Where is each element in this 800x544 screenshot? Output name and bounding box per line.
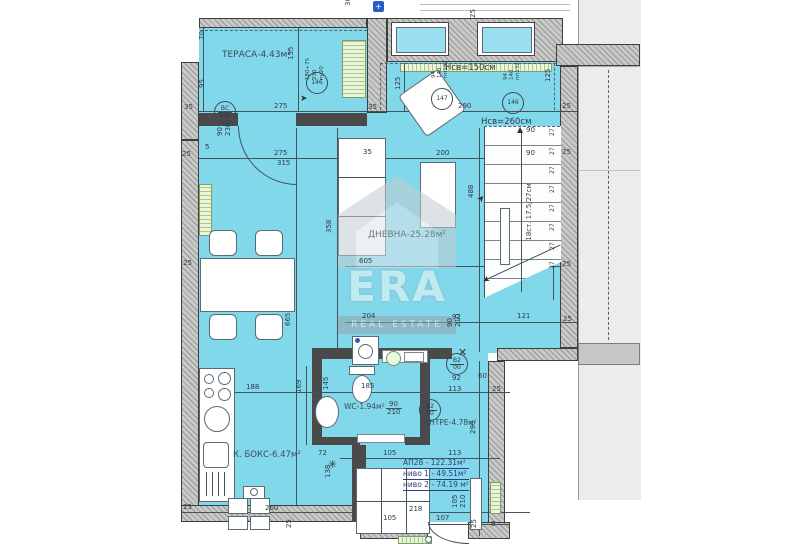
boiler-icon [386, 351, 401, 366]
label-antre: АНТРЕ-4.78м² [424, 418, 477, 427]
window-glass [482, 27, 532, 53]
dim-label: 35 [363, 149, 372, 156]
dim-label: 35 [368, 104, 377, 111]
wall-exterior [497, 348, 578, 361]
washbasin [315, 396, 339, 428]
dim-label: 25 [183, 504, 192, 511]
neighbor-line [578, 170, 640, 171]
dim-label: 358 [326, 220, 333, 233]
dim-line [298, 28, 299, 111]
dim-label: 25 [562, 103, 571, 110]
dim-label: 25 [562, 149, 571, 156]
stair-tread [485, 202, 561, 203]
dim-label: 60 [478, 373, 487, 380]
kitchen-counter [199, 368, 235, 502]
apartment-info: АП28 - 122.31м² ниво 1 - 49.51м² ниво 2 … [403, 458, 469, 491]
dim-label: 90 [389, 401, 398, 408]
dim-label: 95 [199, 79, 206, 88]
dim-label: 200 [436, 150, 449, 157]
drainboard-line [212, 472, 213, 496]
radiator [490, 482, 501, 514]
dim-label: 210 [455, 314, 462, 327]
window-glass [396, 27, 446, 53]
stair-tread [485, 221, 561, 222]
entry-door-arc [428, 522, 469, 544]
element-marker: 146 [306, 72, 328, 94]
dim-label: 27 [549, 147, 556, 155]
dim-label: 105 [383, 515, 396, 522]
dim-label: 5 [205, 144, 209, 151]
dim-label: 35 [184, 104, 193, 111]
stove-burner [204, 388, 214, 398]
dim-line [203, 28, 204, 111]
chair [255, 230, 283, 256]
era-watermark: ERA REAL ESTATE [338, 176, 456, 342]
dim-label: 605 [359, 258, 372, 265]
dim-label: 30 [345, 0, 352, 6]
drainboard-line [224, 472, 225, 496]
dim-label: 25 [183, 260, 192, 267]
dim-label: 90 [526, 127, 535, 134]
dim-label: 488 [468, 185, 475, 198]
dim-label: 218 [409, 506, 422, 513]
wc-threshold [357, 434, 405, 443]
dim-label: 27 [549, 128, 556, 136]
dim-label: 27 [549, 185, 556, 193]
chair [209, 230, 237, 256]
dim-line [479, 128, 480, 352]
dim-label: 105 [452, 495, 459, 508]
dim-label: 90 [447, 318, 454, 327]
wall-interior [296, 113, 367, 126]
dim-label: 27 [549, 204, 556, 212]
marker-text: 00 [450, 364, 464, 371]
dim-label: 121 [517, 313, 530, 320]
shelf-items [404, 352, 424, 362]
wall-exterior [367, 18, 387, 113]
dim-label: 72 [318, 450, 327, 457]
dim-label: 25 [470, 9, 477, 18]
wall-exterior [181, 140, 199, 522]
element-marker: В200 [446, 353, 468, 375]
dim-label: 275 [274, 150, 287, 157]
dim-label: 125 [395, 77, 402, 90]
kitchen-sink [203, 442, 229, 468]
stove-burner [218, 372, 231, 385]
dim-label: 230 [225, 123, 232, 136]
wall-exterior [181, 62, 199, 140]
stair-tread [485, 259, 561, 260]
dim-label: 25 [286, 519, 293, 528]
dashed-line [554, 63, 555, 110]
kitchen-cabinet [228, 516, 248, 530]
dim-line [306, 366, 307, 445]
vent-icon: + [373, 1, 384, 12]
label-terrace: ТЕРАСА-4.43м² [222, 50, 291, 60]
dim-label: пп132 [515, 62, 522, 80]
marker-text: 00 [423, 410, 437, 417]
washing-machine-door [358, 344, 373, 359]
label-h260: Нсв=260см [481, 117, 532, 127]
dim-label: 25 [492, 386, 501, 393]
radiator [199, 184, 212, 236]
apartment-level2: ниво 2 - 74.19 м² [403, 480, 469, 491]
chair [209, 314, 237, 340]
marker-text: 146 [507, 100, 518, 106]
element-marker: 147 [431, 88, 453, 110]
dining-table [200, 258, 295, 312]
era-subtitle: REAL ESTATE [338, 316, 456, 334]
dim-label: 665 [285, 313, 292, 326]
apartment-level1: ниво 1 - 49.51м² [403, 469, 469, 480]
marker-text: 148 [218, 112, 232, 119]
dim-label: 125 [545, 69, 552, 82]
era-logo-text: ERA [338, 262, 456, 311]
dim-label: 113 [448, 450, 461, 457]
dim-label: 138 [325, 465, 332, 478]
dim-label: 210 [460, 495, 467, 508]
stair-tread [485, 164, 561, 165]
dim-label: 25 [563, 316, 572, 323]
dim-label: 27 [549, 242, 556, 250]
dim-label: 6 [491, 521, 495, 528]
dim-label: 27 [549, 166, 556, 174]
dim-label: 107 [436, 515, 449, 522]
dim-label: 105 [383, 450, 396, 457]
floor-plan: + ▲ [0, 0, 800, 544]
dim-label: 315 [277, 160, 290, 167]
entry-door-stop [425, 536, 432, 543]
drainboard-line [206, 472, 207, 496]
label-living: ДНЕВНА-25.28м² [368, 230, 446, 240]
stair-tread [485, 183, 561, 184]
apartment-total: АП28 - 122.31м² [403, 458, 469, 469]
neighbor-wall [578, 343, 640, 365]
element-marker: ВС148 [214, 101, 236, 123]
dim-label: 25 [471, 519, 478, 528]
dim-label: 204 [362, 313, 375, 320]
stove-burner [204, 374, 214, 384]
dim-label: 25 [182, 151, 191, 158]
stair-tread [485, 240, 561, 241]
dim-label: 145 [323, 377, 330, 390]
marker-text: 146 [311, 80, 322, 86]
dim-label: 27 [549, 261, 556, 269]
dim-label: 275 [274, 103, 287, 110]
drainboard-line [218, 472, 219, 496]
dashed-line [200, 30, 367, 31]
marker-text: 147 [436, 96, 447, 102]
stair-handrail [500, 208, 510, 265]
stair-walkline [521, 132, 522, 292]
radiator [342, 40, 366, 98]
oven-circle [204, 406, 230, 432]
wall-interior [312, 437, 360, 445]
label-kitchen: К. БОКС-6.47м² [233, 450, 301, 460]
label-wc: WC-1.94м² [344, 402, 385, 411]
chair [255, 314, 283, 340]
neighbor-axis [608, 70, 609, 340]
dim-label: 113 [448, 386, 461, 393]
dim-label: 27 [549, 223, 556, 231]
wall-interior [405, 437, 430, 445]
kitchen-cabinet [228, 498, 248, 514]
dim-label: 90 [526, 150, 535, 157]
toilet-tank [349, 366, 375, 375]
arrow-icon: ➤ [300, 94, 308, 104]
dim-label: 290 [458, 103, 471, 110]
upper-neighbor-line [420, 10, 570, 11]
dim-label: 185 [361, 383, 374, 390]
stove-burner [218, 388, 231, 401]
dim-label: 70 [199, 31, 206, 40]
dim-label: 169 [296, 380, 303, 393]
dim-label: 90 [217, 127, 224, 136]
label-h150: Нсв=150см [445, 63, 496, 73]
neighbor-section [578, 0, 641, 500]
kitchen-cabinet [250, 516, 270, 530]
kitchen-appliance-knob [250, 488, 258, 496]
wall-exterior [199, 18, 367, 28]
dim-label: 92 [452, 375, 461, 382]
dashed-line [380, 63, 381, 110]
element-marker: 146 [502, 92, 524, 114]
neighbor-line [578, 66, 640, 67]
wardrobe-line [356, 501, 430, 502]
dim-label: 188 [246, 384, 259, 391]
label-stairs: 18ст. 17.5/27см [525, 177, 533, 247]
dim-label: 260 [265, 505, 278, 512]
dim-label: 25 [562, 261, 571, 268]
stair-tread [485, 145, 561, 146]
wall-exterior [556, 44, 640, 66]
dim-label: 210 [387, 409, 400, 416]
upper-neighbor-line [420, 4, 570, 5]
